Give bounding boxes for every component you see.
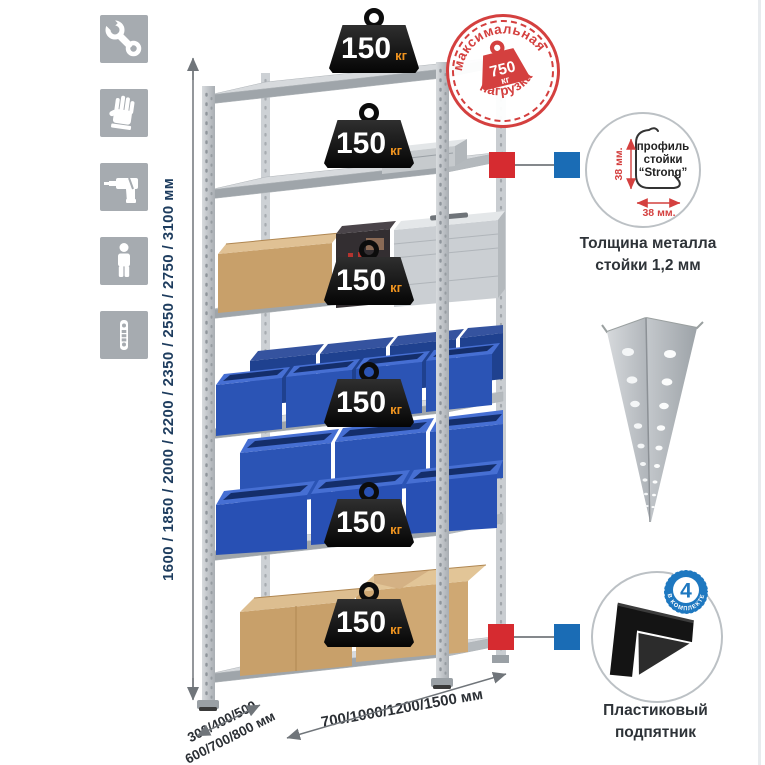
foot-caption-line2: подпятник	[578, 722, 733, 744]
load-value: 150	[336, 388, 386, 418]
load-unit: кг	[390, 280, 402, 295]
callout-target-marker-top	[554, 152, 580, 178]
load-unit: кг	[390, 402, 402, 417]
profile-label-line2: стойки	[644, 154, 683, 166]
load-unit: кг	[390, 522, 402, 537]
angle-post-image	[602, 318, 703, 522]
profile-caption-line2: стойки 1,2 мм	[568, 255, 728, 277]
load-value: 150	[336, 266, 386, 296]
load-value: 150	[336, 129, 386, 159]
callout-lines	[514, 165, 554, 637]
profile-caption-line1: Толщина металла	[568, 233, 728, 255]
callout-source-marker-bottom	[488, 624, 514, 650]
shelf2-load-badge: 150 кг	[324, 103, 414, 168]
kit-count-value: 4	[680, 580, 692, 603]
foot-caption: Пластиковый подпятник	[578, 700, 733, 743]
width-dimension-line	[287, 674, 506, 738]
load-value: 150	[336, 608, 386, 638]
profile-dim-vertical: 38 мм.	[613, 147, 625, 180]
shelf5-load-badge: 150 кг	[324, 482, 414, 547]
load-value: 150	[336, 508, 386, 538]
load-unit: кг	[395, 48, 407, 63]
shelf3-load-badge: 150 кг	[324, 240, 414, 305]
load-unit: кг	[390, 143, 402, 158]
profile-label-line3: “Strong”	[639, 167, 688, 179]
profile-dim-horizontal: 38 мм.	[642, 207, 675, 219]
foot-caption-line1: Пластиковый	[578, 700, 733, 722]
cardboard-box-shelf3	[218, 233, 340, 313]
product-diagram: 1600 / 1850 / 2000 / 2200 / 2350 / 2550 …	[0, 0, 765, 765]
post-profile-detail: 38 мм. 38 мм. профиль стойки “Strong”	[585, 112, 701, 228]
kit-count-badge: 4 в комплекте	[663, 569, 709, 615]
callout-source-marker-top	[489, 152, 515, 178]
load-value: 150	[341, 34, 391, 64]
load-unit: кг	[390, 622, 402, 637]
shelf6-load-badge: 150 кг	[324, 582, 414, 647]
shelf4-load-badge: 150 кг	[324, 362, 414, 427]
callout-target-marker-bottom	[554, 624, 580, 650]
shelf1-load-badge: 150 кг	[329, 8, 419, 73]
profile-caption: Толщина металла стойки 1,2 мм	[568, 233, 728, 276]
profile-label-line1: профиль	[637, 141, 690, 153]
